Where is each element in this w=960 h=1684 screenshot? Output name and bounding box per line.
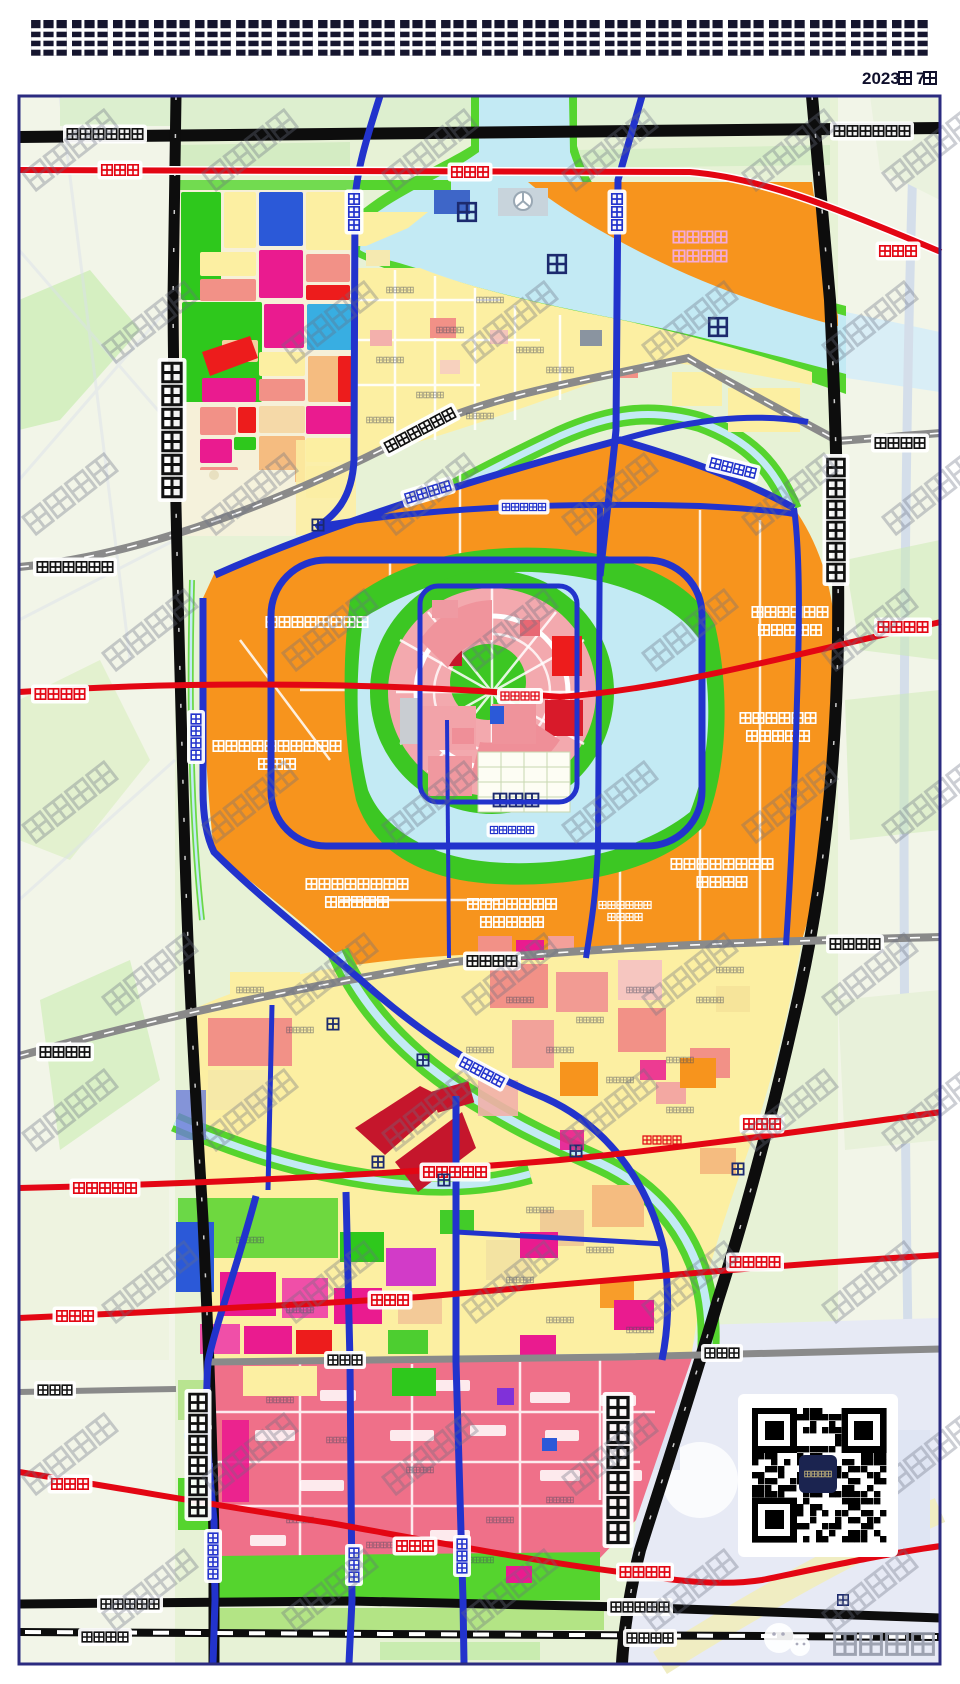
svg-text:2023: 2023 bbox=[862, 69, 900, 88]
